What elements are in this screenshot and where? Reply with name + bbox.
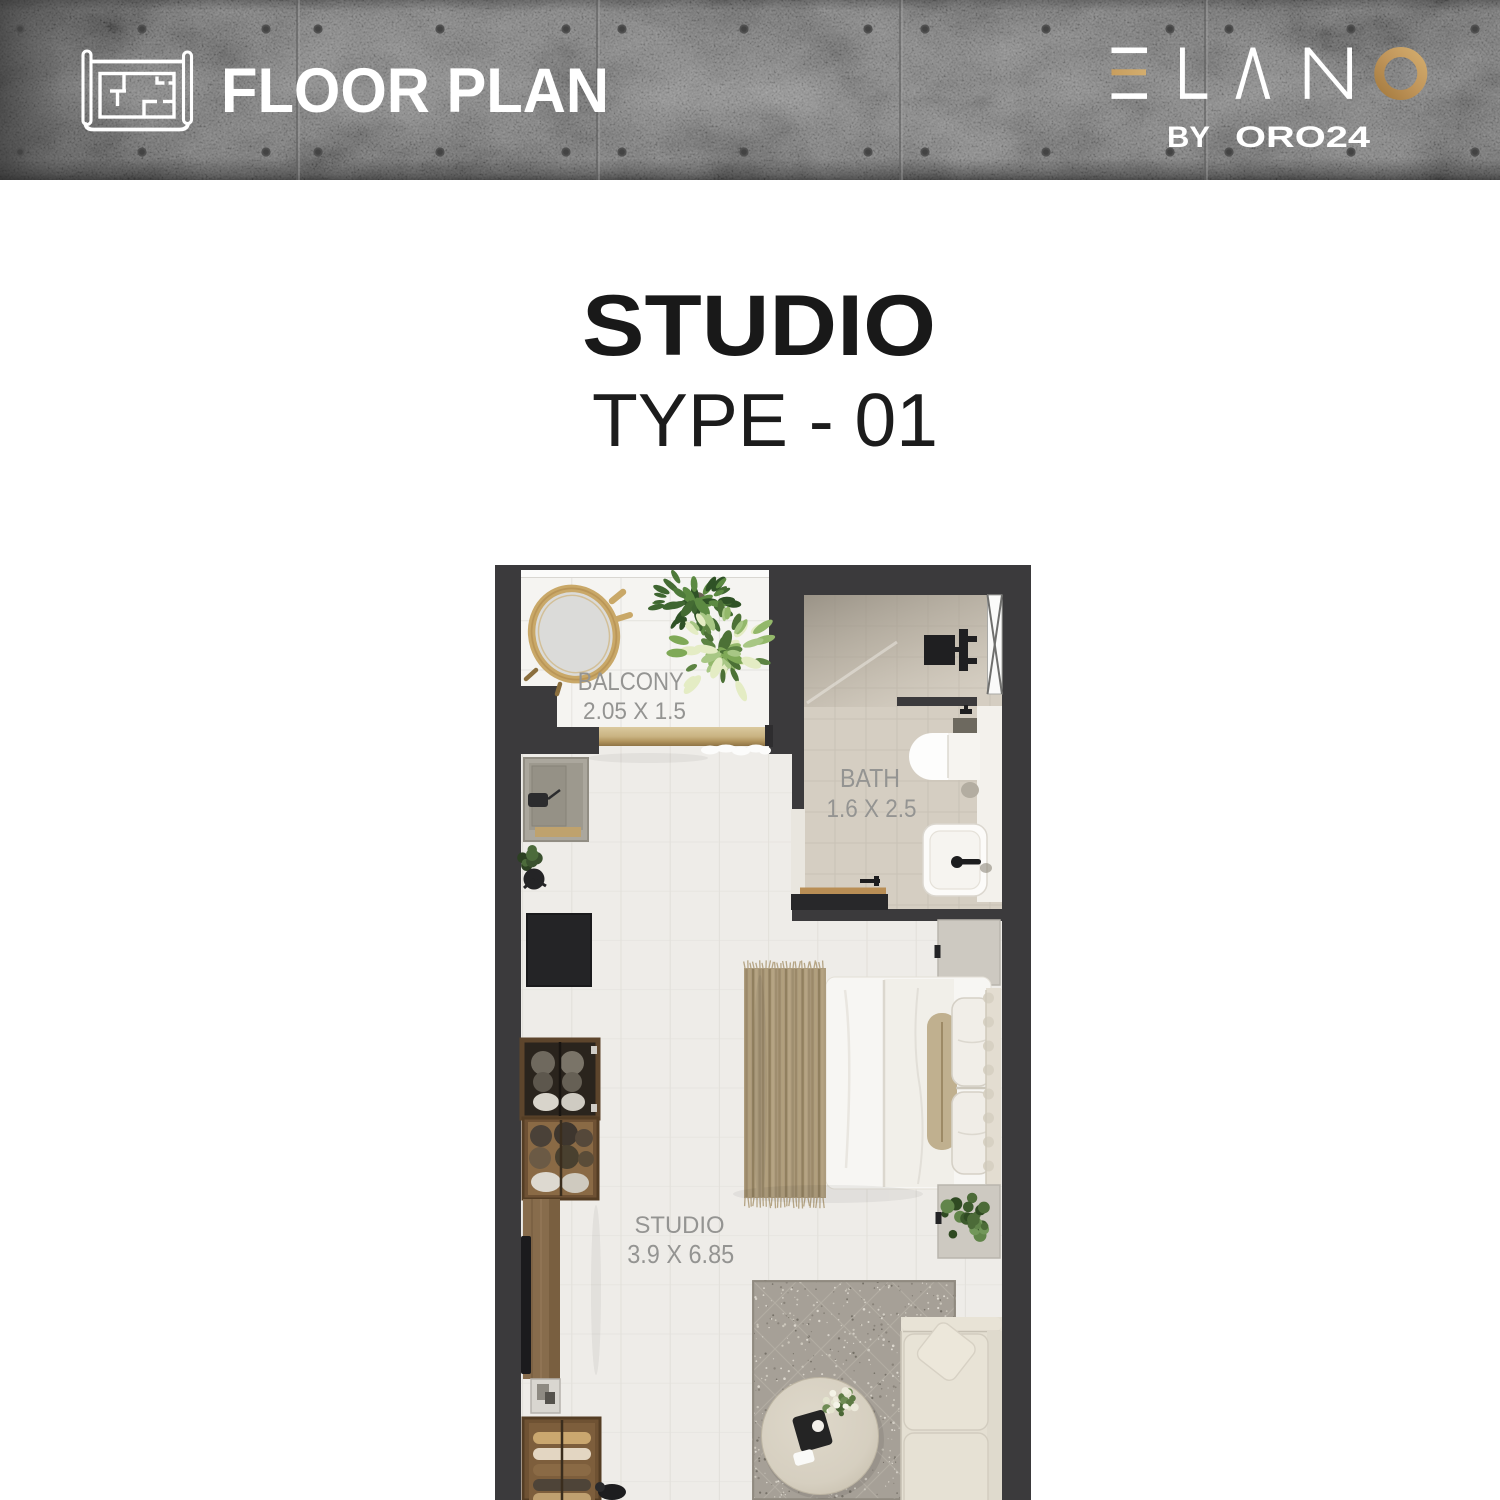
- svg-text:BY: BY: [1167, 121, 1210, 154]
- svg-text:BALCONY: BALCONY: [578, 668, 684, 696]
- svg-text:STUDIO: STUDIO: [635, 1212, 725, 1239]
- svg-text:2.05 X 1.5: 2.05 X 1.5: [583, 698, 686, 725]
- svg-text:3.9 X 6.85: 3.9 X 6.85: [627, 1239, 734, 1269]
- svg-text:BATH: BATH: [840, 763, 900, 793]
- svg-text:STUDIO: STUDIO: [582, 278, 936, 374]
- svg-text:FLOOR PLAN: FLOOR PLAN: [221, 56, 609, 126]
- svg-text:ORO24: ORO24: [1235, 121, 1371, 154]
- svg-text:1.6 X 2.5: 1.6 X 2.5: [827, 795, 917, 823]
- svg-text:TYPE - 01: TYPE - 01: [592, 378, 938, 462]
